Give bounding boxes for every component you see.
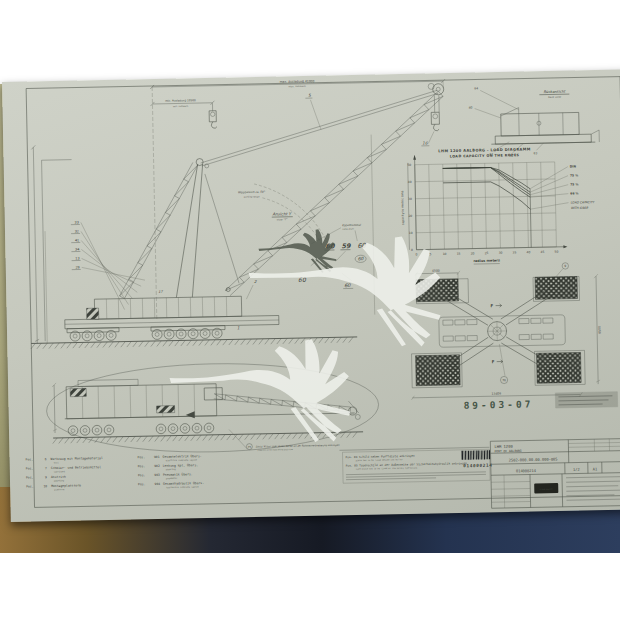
chart-xtick-label: 45 (541, 250, 545, 254)
lattice-chords (117, 162, 200, 298)
barcode-bar (489, 450, 490, 459)
transport-wheels (68, 423, 214, 436)
view-y-sub: view "Y" (276, 218, 288, 221)
barcode-bar (484, 450, 485, 459)
wheel-hub (83, 428, 87, 432)
callout-5: 5 (308, 93, 311, 98)
chart-series-DIN (443, 167, 530, 191)
rear-callout-84: 84 (474, 86, 478, 90)
title-doc-number: 014000214 (516, 469, 537, 473)
chart-gridline-x (541, 162, 543, 247)
parts-pos-number: 10 (43, 484, 47, 488)
wheel (204, 423, 214, 433)
barcode-bar (486, 450, 487, 459)
parts-pos-label: Pos. (26, 457, 34, 461)
wheel-hub (155, 332, 159, 336)
parts-pos-label: Pos. (138, 482, 146, 486)
chart-plot-area: 0510152025303540455001020304050DIN75 %75… (407, 151, 596, 257)
wheel-hub (207, 426, 211, 430)
wheel-hub (71, 429, 75, 433)
chart-ytick-label: 0 (411, 248, 413, 252)
chart-legend-grab-1: LOAD CAPACITY (570, 200, 595, 204)
callout-33: 33 (74, 220, 78, 224)
barcode-bar (470, 451, 471, 460)
wheel-hub (215, 331, 219, 335)
parts-list: Pos.6Werkzeug mit MontagematerialtoolPos… (26, 454, 205, 492)
wheel-hub (159, 427, 163, 431)
callout-leaders-left (71, 221, 146, 310)
chart-gridline-x (457, 164, 459, 249)
barcode-bar (467, 451, 468, 460)
wheel (192, 423, 202, 433)
dark-stork-silhouette (257, 216, 343, 275)
chart-legend-label: 66 % (570, 191, 578, 195)
wheel-hub (179, 332, 183, 336)
number-59: 59 (341, 242, 351, 250)
chart-y-arrow (413, 155, 416, 160)
wheel-hub (85, 334, 89, 338)
chart-gridline-x (485, 163, 487, 248)
number-60-e: 60 (344, 282, 351, 288)
callout-16: 16 (422, 140, 428, 145)
chart-ytick-label: 30 (408, 197, 412, 201)
chart-xtick-label: 5 (430, 252, 432, 256)
parts-pos-label: Pos. (26, 466, 34, 470)
plan-dim-top: 4500 (432, 269, 440, 273)
date-stamp: 89-03-07 (463, 398, 533, 410)
barcode-bar (487, 450, 488, 459)
callout-41: 41 (75, 238, 79, 242)
note-pos84-sub: plate has to be fixed beside the buffer (356, 458, 404, 462)
plan-view: 4500 8500 13408 F F 9 78 (409, 262, 603, 400)
parts-pos-number: 9 (45, 475, 47, 479)
note-pos85-sub: type plate has to be fixed at the safety… (356, 466, 417, 470)
photo-of-crane-drawing: max. Ausladung 41000 max. outreach min. … (0, 0, 620, 620)
parts-item-sub: steering (166, 468, 177, 471)
parts-item-sub: pneumatic (166, 477, 178, 480)
view-y-label: Ansicht Y (272, 211, 292, 216)
wheel (80, 426, 90, 436)
plan-section-f-top: F (491, 303, 494, 308)
number-60-c: 60 (358, 256, 365, 261)
plan-callout-78: 78 (502, 378, 506, 382)
chart-ytick-label: 50 (407, 163, 411, 167)
parts-item-sub: platform (54, 488, 65, 491)
drawing-paper: max. Ausladung 41000 max. outreach min. … (2, 69, 620, 522)
wheel-hub (73, 334, 77, 338)
white-stork-silhouette-1 (242, 193, 460, 354)
barcode-bar (475, 451, 476, 460)
wheel-hub (109, 333, 113, 337)
dim-min-outreach: min. Ausladung 10500 (165, 98, 196, 103)
parts-pos-number: 7 (45, 466, 47, 470)
chart-gridline-x (443, 164, 445, 249)
mast-lattice (117, 162, 200, 298)
rear-callout-83: 83 (533, 151, 537, 155)
chart-legend-label: 75 % (570, 173, 578, 177)
dim-max-outreach-en: max. outreach (288, 85, 306, 88)
plan-section-f-bottom: F (492, 359, 495, 364)
parts-pos-number: 904 (154, 482, 160, 486)
chart-xtick-label: 0 (416, 252, 418, 256)
rear-view-label: Rückansicht (543, 90, 565, 94)
liebherr-logo-text: LIEBHERR (540, 488, 553, 491)
luffing-range-label: Wippbereich ca. 50° (238, 190, 266, 195)
parts-pos-number: 901 (154, 455, 160, 459)
title-format: A1 (593, 467, 598, 471)
chart-max-radius-line (530, 189, 531, 248)
title-project: PORT OF AALBORG (494, 449, 521, 454)
chart-y-axis (415, 158, 417, 250)
wheel (168, 424, 178, 434)
chart-gridline-x (471, 164, 473, 249)
wheel (104, 425, 114, 435)
chart-xtick-label: 30 (499, 251, 503, 255)
parts-pos-label: Pos. (26, 475, 34, 479)
chart-gridline-x (527, 162, 529, 247)
chart-legend-grab-leader (530, 203, 568, 210)
sheet-frame (26, 77, 620, 508)
callout-34: 34 (75, 247, 79, 251)
chart-ytick-label: 40 (408, 180, 412, 184)
transport-note-en: plate has to be fixed above each tyre (257, 448, 293, 452)
cable-drum-label: Kabeltrommel (342, 223, 362, 227)
wheel (92, 425, 102, 435)
barcode-bar (464, 451, 465, 460)
wheel (180, 424, 190, 434)
parts-item-sub: painting (54, 479, 65, 482)
plan-callout-9: 9 (564, 264, 566, 268)
chart-xtick-label: 25 (485, 251, 489, 255)
barcode-bar (468, 451, 469, 460)
parts-pos-label: Pos. (26, 484, 34, 488)
wheel (156, 424, 166, 434)
barcode-bar (471, 451, 472, 460)
barcode: 014000214 (461, 450, 492, 468)
barcode-bar (473, 451, 474, 460)
parts-pos-label: Pos. (138, 455, 146, 459)
chart-xtick-label: 35 (513, 251, 517, 255)
barcode-bar (465, 451, 466, 460)
chart-xlabel: radius meters (473, 259, 500, 264)
wheel-hub (95, 428, 99, 432)
chart-x-arrow (563, 245, 567, 248)
parts-item-sub: hydraulics complete layout (166, 486, 199, 490)
barcode-bar (477, 451, 478, 460)
barcode-number: 014000214 (463, 463, 492, 469)
wheel-hub (203, 331, 207, 335)
parts-pos-label: Pos. (138, 464, 146, 468)
title-drawing-number: 2502-000.00.00.000-005 (509, 458, 558, 463)
chart-ylabel: capacity in metric tons (400, 190, 405, 225)
callout-17: 17 (158, 290, 163, 294)
chart-legend-leader (530, 194, 568, 198)
chart-y-axis-2 (408, 163, 410, 250)
chart-ytick-label: 10 (409, 231, 413, 235)
luffing-range-label-en: working range (243, 195, 259, 198)
chart-gridline-x (499, 163, 501, 248)
barcode-bar (461, 451, 463, 460)
transport-callout-75: 75 (248, 446, 252, 449)
callout-29: 29 (75, 265, 79, 269)
chart-xtick-label: 50 (555, 250, 559, 254)
rear-callout-80: 80 (469, 106, 473, 110)
load-chart: LHM 1200 AALBORG - LOAD DIAGRAMM LOAD CA… (399, 146, 596, 265)
title-sheet: 1/2 (573, 468, 580, 472)
parts-pos-number: 902 (154, 464, 160, 468)
callout-1: 1 (237, 325, 240, 330)
chart-gridline-x (513, 163, 515, 248)
dim-min-outreach-en: min. outreach (173, 105, 189, 108)
chart-legend-label: 75 % (570, 182, 578, 186)
wheel-hub (171, 427, 175, 431)
parts-item-sub: electrics complete layout (166, 459, 198, 463)
crane-elevation-view: max. Ausladung 41000 max. outreach min. … (26, 77, 451, 349)
cable-drum-label-en: cable drum (342, 228, 355, 231)
stamp-smudge (555, 392, 617, 408)
parts-item-sub: tool (54, 461, 60, 464)
drawing-sheet-svg: max. Ausladung 41000 max. outreach min. … (2, 69, 620, 522)
plan-dim-right: 8500 (598, 326, 602, 334)
wheel-hub (183, 426, 187, 430)
callout-2: 2 (254, 279, 257, 284)
wheel-hub (191, 332, 195, 336)
wheel-hub (107, 428, 111, 432)
chart-xtick-label: 15 (457, 252, 461, 256)
chart-gridline-x (429, 164, 431, 249)
parts-item-sub: lubricant (54, 470, 66, 473)
plan-dim-bottom: 13408 (492, 392, 502, 396)
rear-view-sub: back view (548, 96, 562, 99)
barcode-bar (481, 450, 482, 459)
barcode-bar (476, 451, 477, 460)
barcode-bar (480, 450, 481, 459)
callout-13: 13 (75, 256, 79, 260)
chart-xtick-label: 20 (471, 251, 475, 255)
parts-pos-number: 6 (45, 457, 47, 461)
parts-pos-label: Pos. (138, 473, 146, 477)
chart-ytick-label: 20 (408, 214, 412, 218)
chart-series-75 (443, 167, 530, 197)
wheel-hub (195, 426, 199, 430)
callout-32: 32 (75, 229, 79, 233)
chart-legend-leader (530, 167, 569, 189)
chart-gridline-x (555, 162, 557, 247)
chart-legend-grab-2: WITH GRAB (571, 206, 589, 210)
barcode-bar (482, 450, 483, 459)
parts-pos-number: 903 (154, 473, 160, 477)
wheel-hub (97, 334, 101, 338)
wheel-hub (167, 332, 171, 336)
chart-xtick-label: 40 (527, 250, 531, 254)
dim-max-outreach: max. Ausladung 41000 (280, 79, 315, 84)
stork-watermarks (160, 190, 464, 453)
chart-legend-label: DIN (570, 164, 577, 168)
chart-xtick-label: 10 (443, 252, 447, 256)
